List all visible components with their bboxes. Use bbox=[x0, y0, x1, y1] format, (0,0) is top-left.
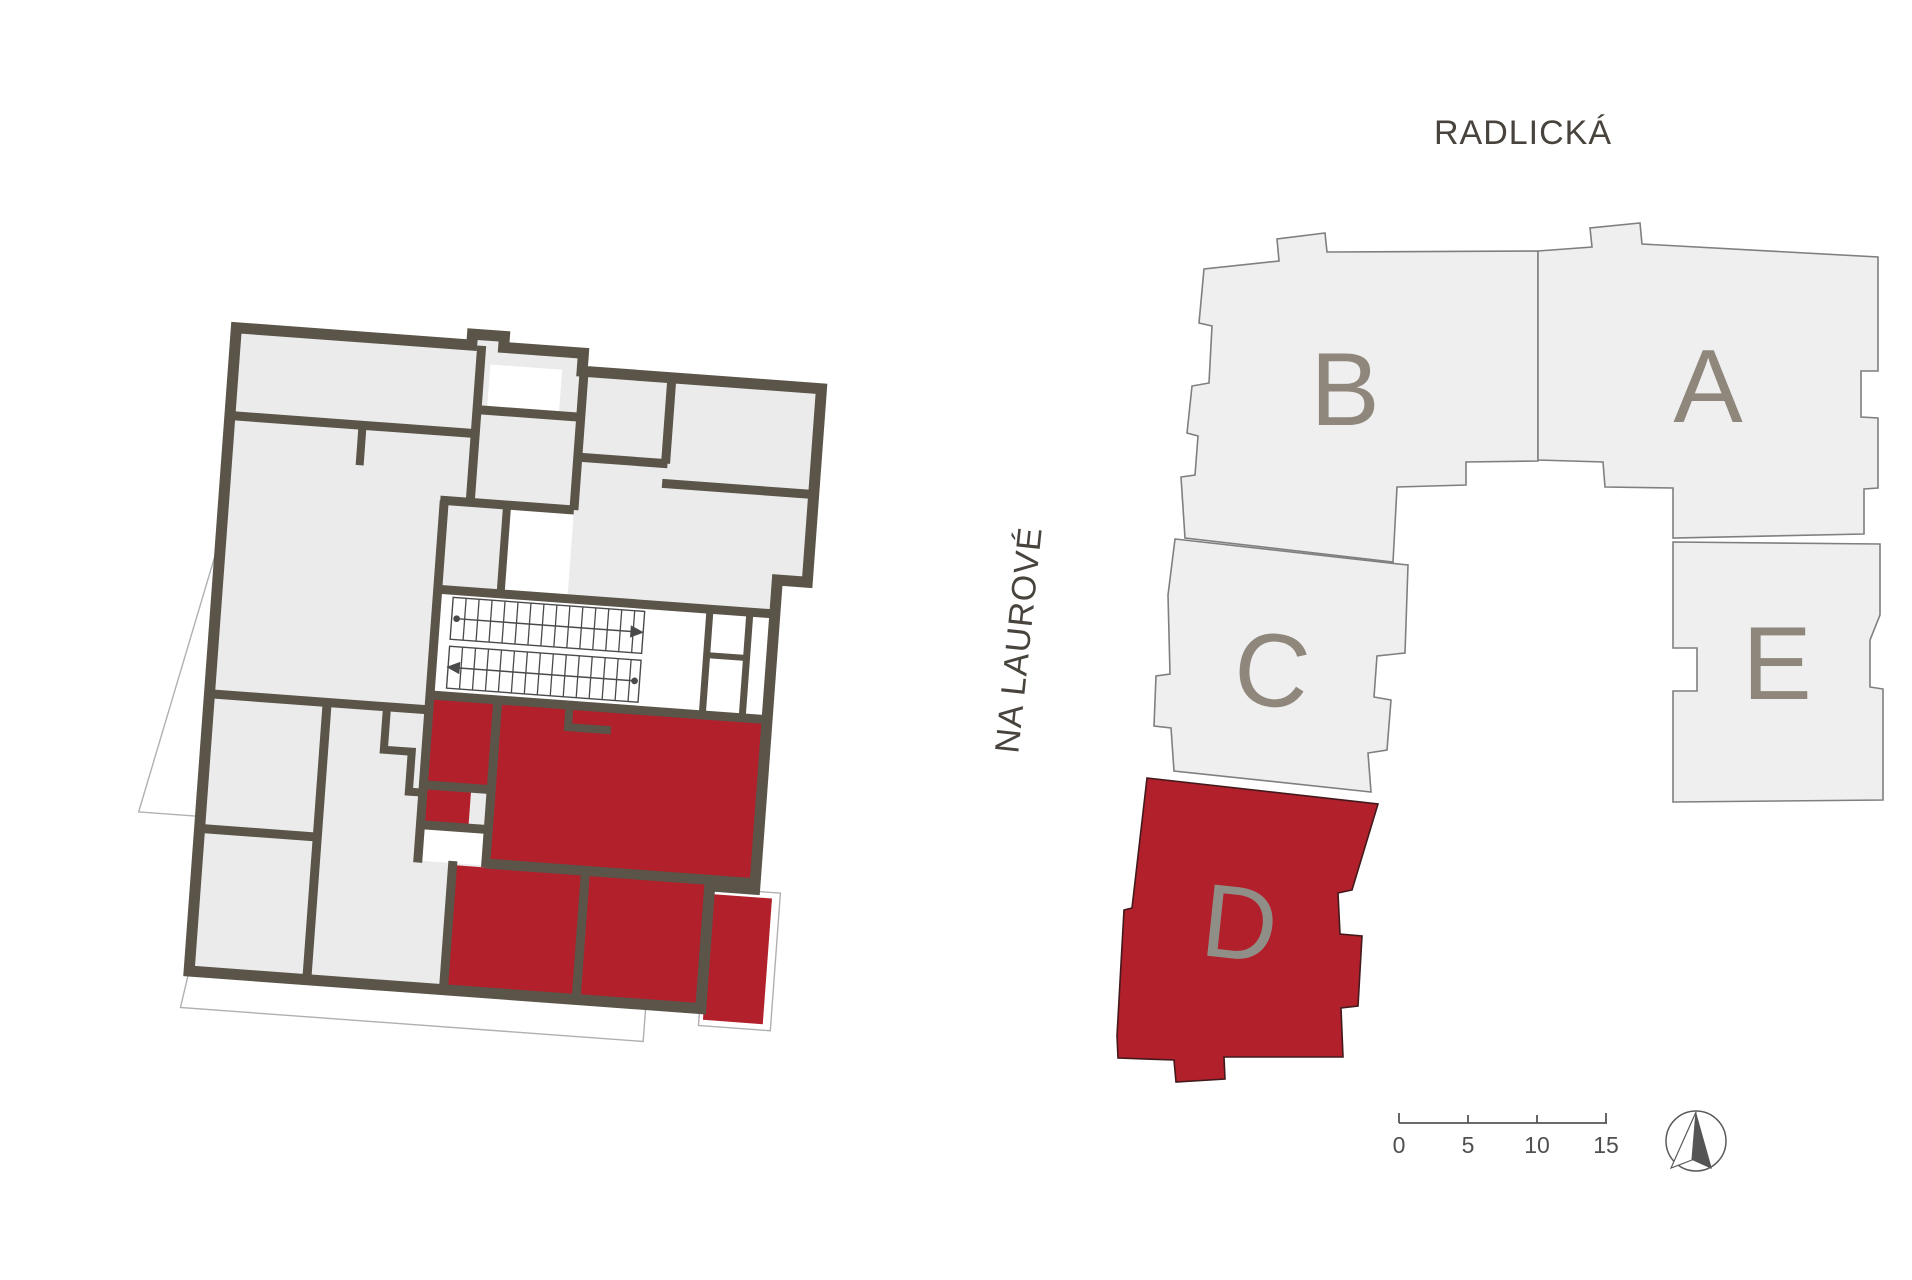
building-a-label: A bbox=[1673, 329, 1743, 445]
building-e-label: E bbox=[1742, 606, 1811, 722]
scale-bar bbox=[1399, 1113, 1607, 1123]
unit-room-c[interactable] bbox=[447, 865, 582, 996]
unit-room-main[interactable] bbox=[490, 700, 763, 883]
street-label-na-laurove: NA LAUROVÉ bbox=[988, 525, 1050, 755]
building-b-label: B bbox=[1310, 332, 1379, 448]
svg-text:10: 10 bbox=[1524, 1132, 1550, 1158]
svg-text:15: 15 bbox=[1593, 1132, 1619, 1158]
unit-room-a[interactable] bbox=[428, 695, 498, 787]
floor-plan bbox=[125, 312, 824, 1051]
unit-balcony[interactable] bbox=[703, 894, 772, 1024]
svg-text:5: 5 bbox=[1462, 1132, 1475, 1158]
scale-bar-labels: 0 5 10 15 bbox=[1393, 1132, 1619, 1158]
street-label-radlicka: RADLICKÁ bbox=[1434, 114, 1612, 152]
building-b[interactable]: B bbox=[1181, 233, 1538, 562]
building-e[interactable]: E bbox=[1673, 542, 1883, 802]
plan-canvas: B A C E D RADLICKÁ NA LAUROVÉ bbox=[0, 0, 1912, 1280]
svg-text:0: 0 bbox=[1393, 1132, 1406, 1158]
building-c-label: C bbox=[1228, 609, 1315, 732]
building-a[interactable]: A bbox=[1538, 223, 1878, 538]
north-arrow-icon bbox=[1666, 1111, 1726, 1171]
building-c[interactable]: C bbox=[1154, 539, 1408, 792]
site-plan: B A C E D RADLICKÁ NA LAUROVÉ bbox=[988, 114, 1883, 1082]
building-d-highlighted[interactable]: D bbox=[1117, 778, 1378, 1082]
page: B A C E D RADLICKÁ NA LAUROVÉ bbox=[0, 0, 1912, 1280]
unit-room-d[interactable] bbox=[578, 875, 707, 1005]
building-d-label: D bbox=[1196, 862, 1283, 985]
